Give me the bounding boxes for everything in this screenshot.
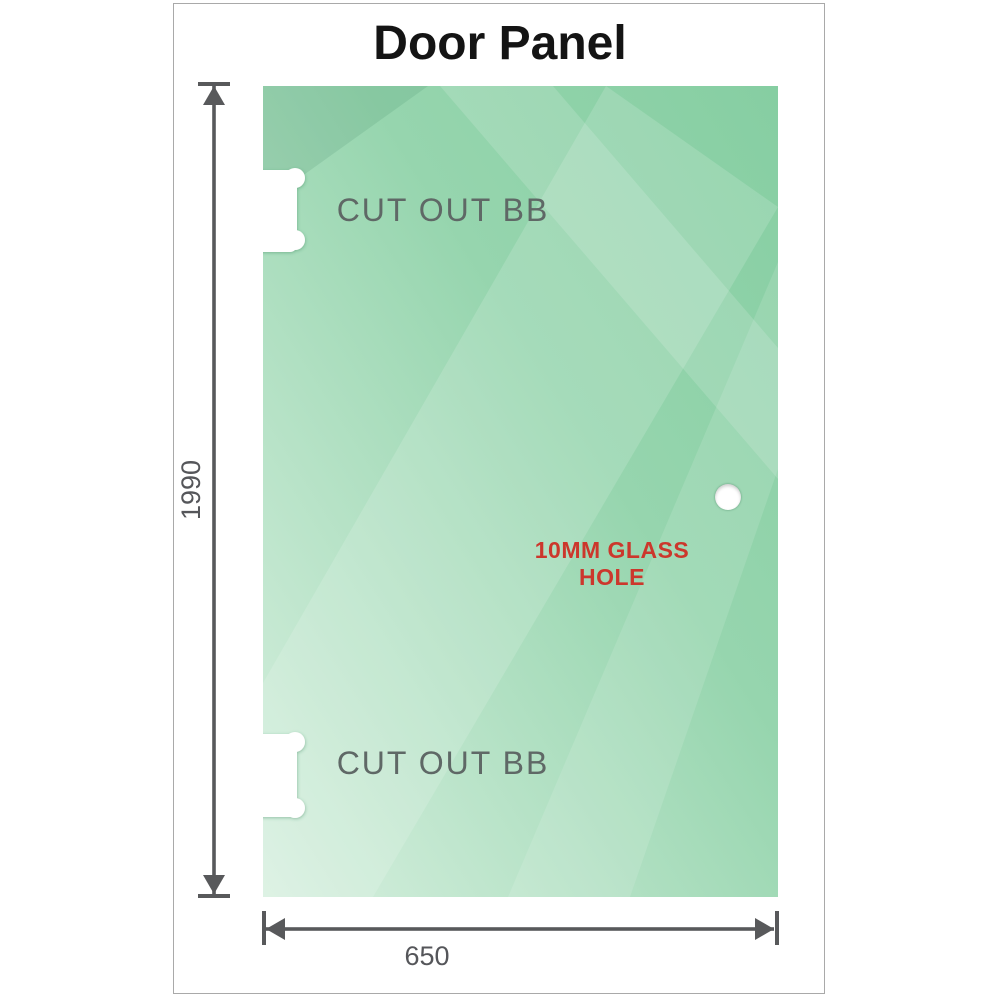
dimension-tick — [198, 82, 230, 86]
dimension-line — [212, 86, 216, 894]
product-diagram: Door Panel — [0, 0, 1000, 1000]
dimension-tick — [198, 894, 230, 898]
dimension-tick — [775, 911, 779, 945]
arrow-down-icon — [203, 875, 225, 894]
page-title: Door Panel — [173, 16, 827, 71]
cutout-label-bottom: CUT OUT BB — [336, 745, 550, 782]
arrow-up-icon — [203, 86, 225, 105]
width-dimension — [258, 908, 782, 952]
arrow-right-icon — [755, 918, 774, 940]
width-dimension-label: 650 — [367, 941, 487, 972]
dimension-tick — [262, 911, 266, 945]
dimension-line — [266, 927, 774, 931]
cutout-label-top: CUT OUT BB — [336, 192, 550, 229]
height-dimension-label: 1990 — [171, 459, 211, 521]
glass-hole-label: 10MM GLASS HOLE — [500, 537, 724, 591]
arrow-left-icon — [266, 918, 285, 940]
glass-hole — [715, 484, 741, 510]
